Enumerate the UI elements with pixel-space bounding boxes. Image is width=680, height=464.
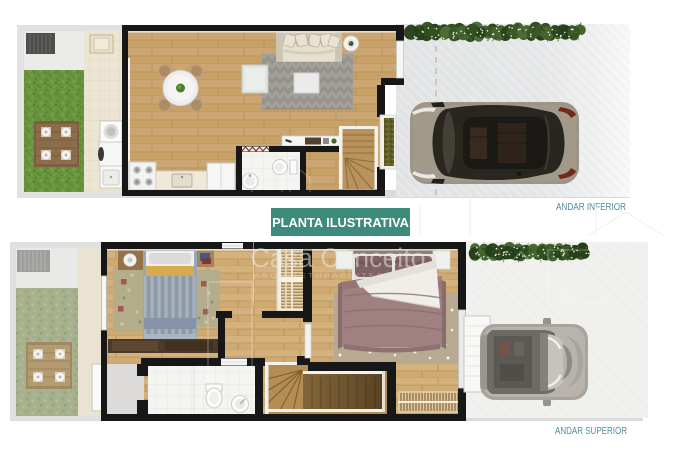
svg-text:Casa Conceito: Casa Conceito: [251, 243, 426, 273]
svg-text:A R Q U I T E T U R A E I: A R Q U I T E T U R A E I N T E R I O R …: [254, 273, 423, 280]
svg-text:PLANTA ILUSTRATIVA: PLANTA ILUSTRATIVA: [272, 215, 409, 230]
svg-text:ANDAR INFERIOR: ANDAR INFERIOR: [556, 201, 626, 213]
svg-text:ANDAR SUPERIOR: ANDAR SUPERIOR: [555, 425, 627, 437]
